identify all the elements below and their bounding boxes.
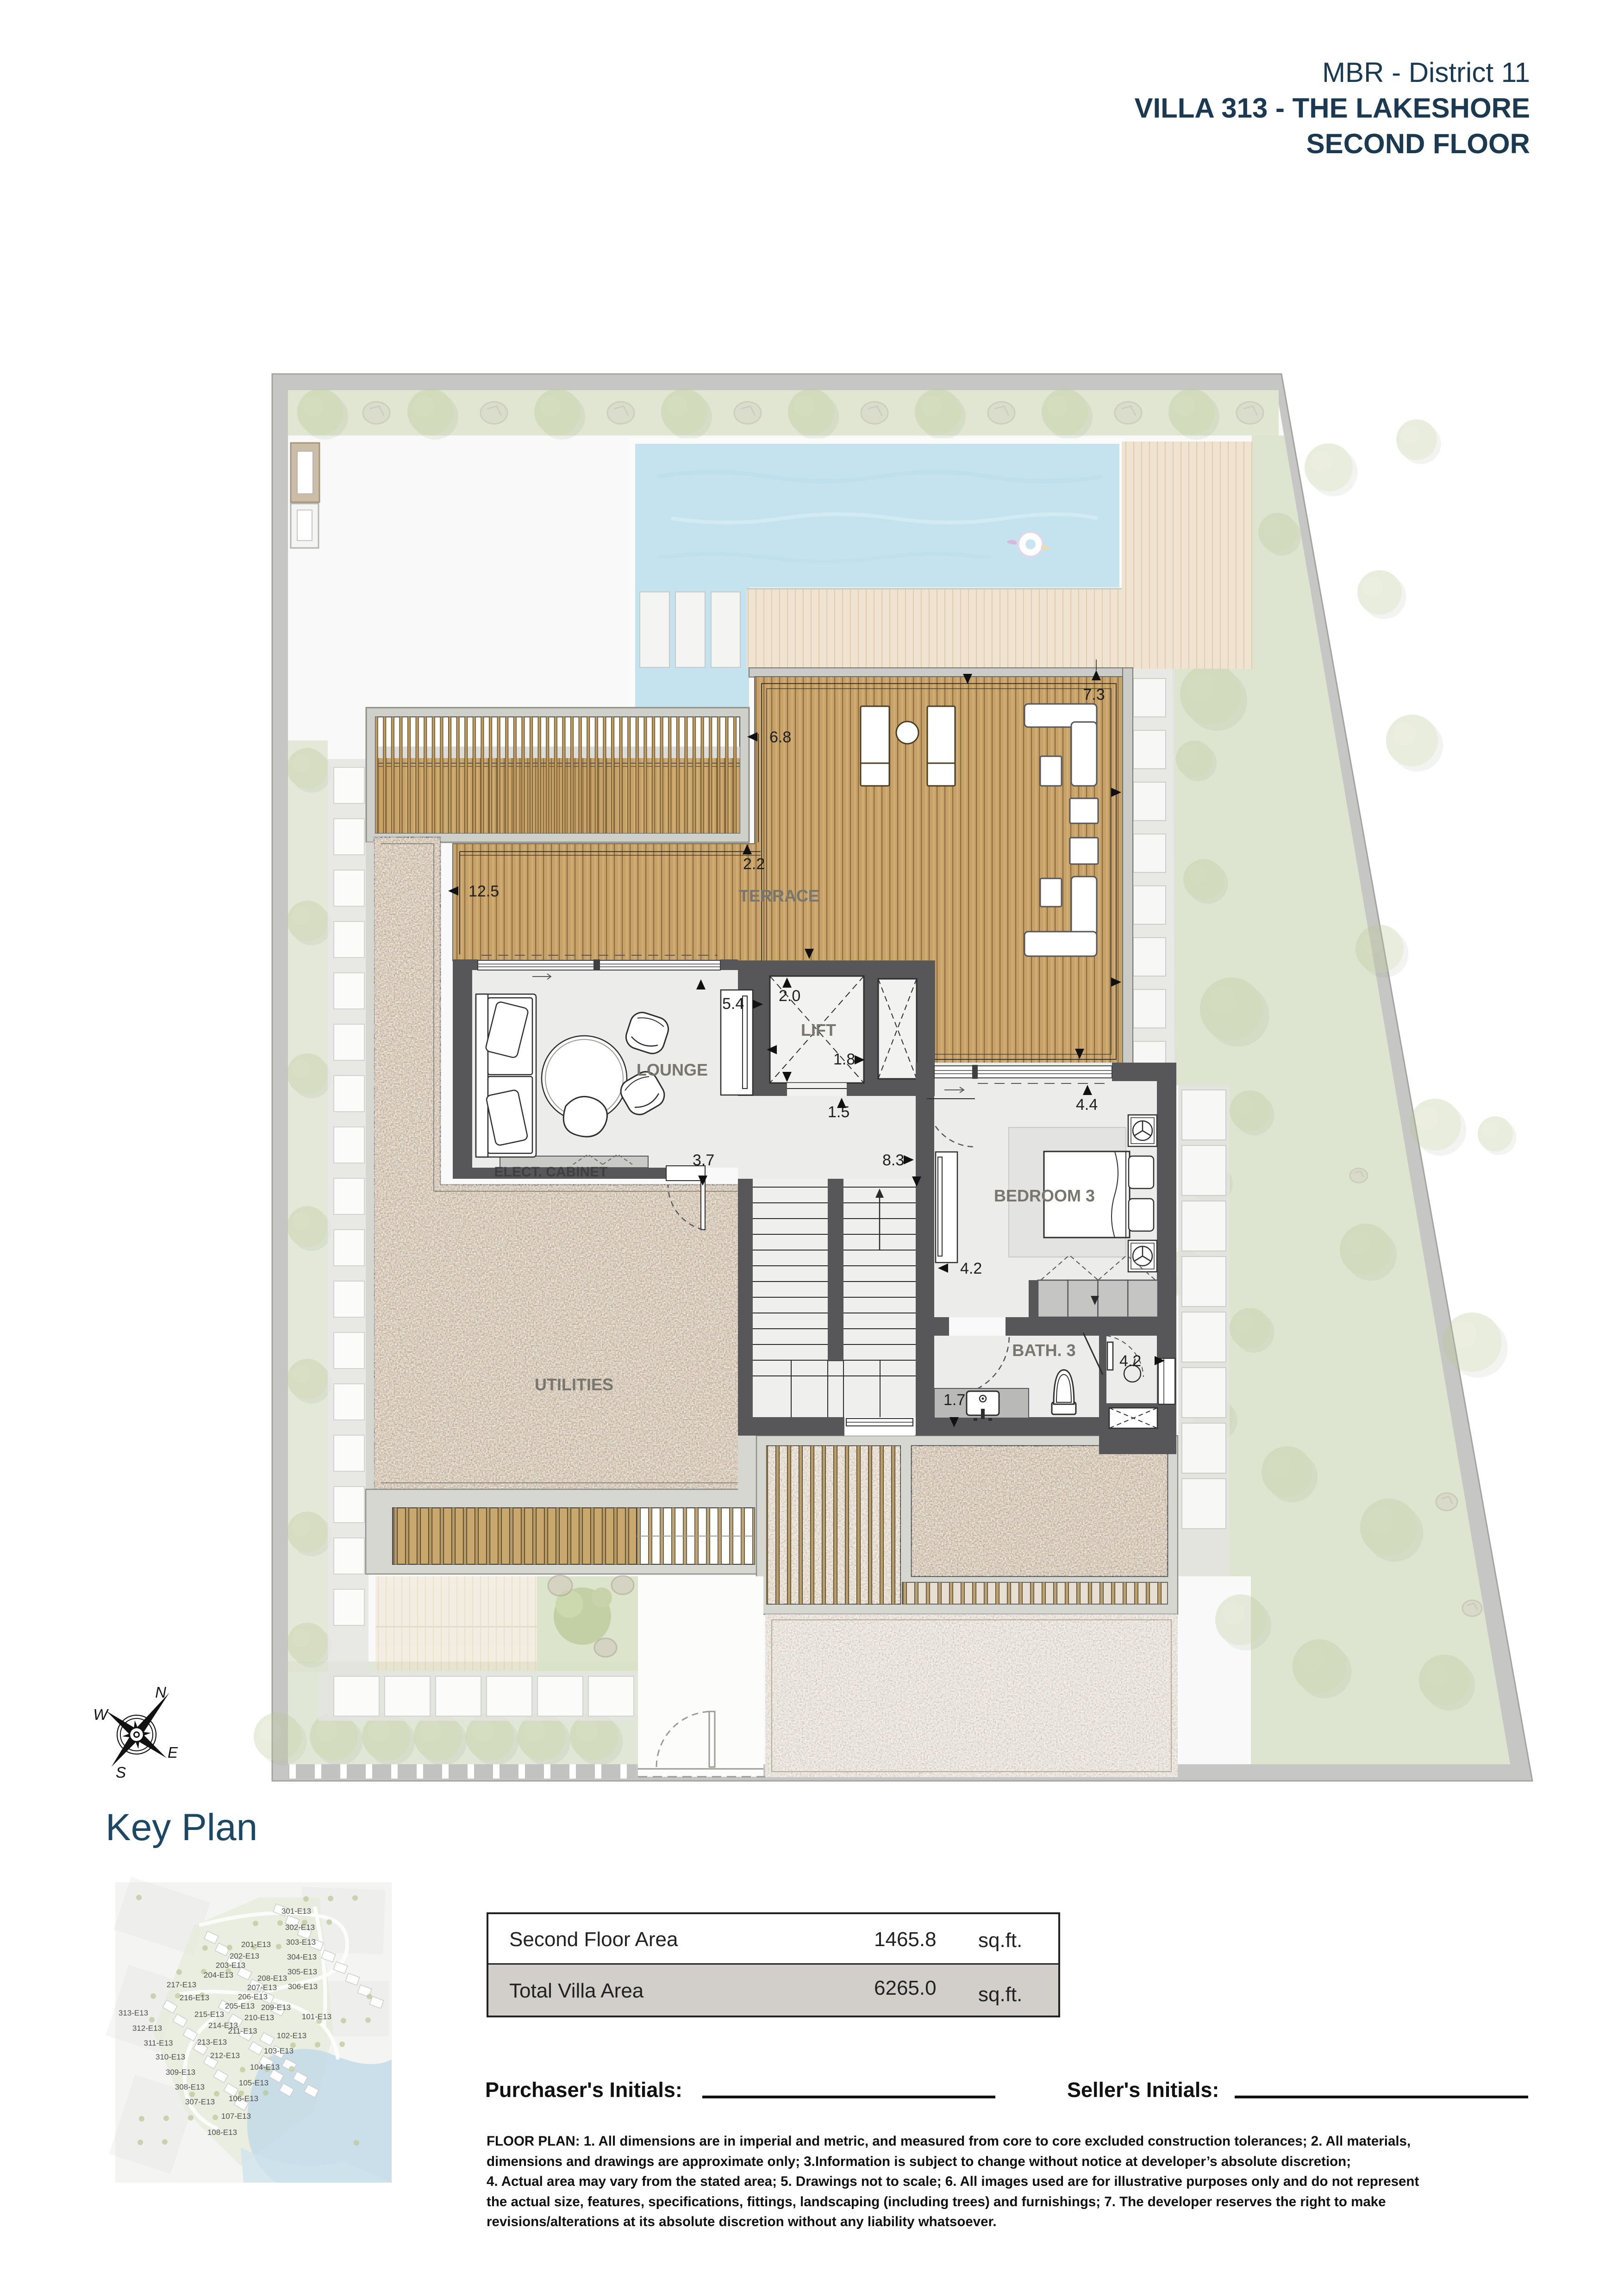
svg-text:UTILITIES: UTILITIES	[535, 1375, 613, 1394]
svg-text:2.2: 2.2	[743, 855, 765, 873]
svg-text:107-E13: 107-E13	[221, 2112, 251, 2121]
svg-text:306-E13: 306-E13	[288, 1982, 318, 1991]
svg-text:1.8: 1.8	[833, 1051, 855, 1068]
svg-text:312-E13: 312-E13	[132, 2024, 162, 2033]
svg-text:204-E13: 204-E13	[204, 1971, 233, 1979]
svg-text:4.2: 4.2	[960, 1260, 982, 1277]
svg-text:211-E13: 211-E13	[228, 2027, 257, 2035]
svg-text:209-E13: 209-E13	[261, 2003, 291, 2012]
svg-text:S: S	[116, 1764, 126, 1781]
svg-text:212-E13: 212-E13	[210, 2051, 240, 2060]
svg-text:210-E13: 210-E13	[244, 2013, 274, 2022]
svg-text:304-E13: 304-E13	[287, 1953, 317, 1961]
svg-text:8.3: 8.3	[882, 1151, 904, 1169]
svg-text:301-E13: 301-E13	[281, 1907, 311, 1916]
svg-text:LIFT: LIFT	[801, 1020, 836, 1039]
svg-text:310-E13: 310-E13	[156, 2053, 185, 2061]
svg-text:LOUNGE: LOUNGE	[637, 1060, 708, 1079]
svg-text:106-E13: 106-E13	[229, 2094, 258, 2103]
svg-text:5.4: 5.4	[722, 995, 744, 1013]
svg-text:303-E13: 303-E13	[286, 1938, 316, 1947]
svg-text:103-E13: 103-E13	[264, 2047, 294, 2055]
svg-text:105-E13: 105-E13	[239, 2078, 269, 2087]
svg-text:102-E13: 102-E13	[277, 2031, 306, 2040]
svg-text:217-E13: 217-E13	[167, 1980, 196, 1989]
svg-text:216-E13: 216-E13	[180, 1993, 209, 2002]
svg-text:305-E13: 305-E13	[287, 1967, 317, 1976]
svg-text:BATH. 3: BATH. 3	[1012, 1341, 1075, 1360]
svg-text:215-E13: 215-E13	[194, 2010, 224, 2019]
svg-text:201-E13: 201-E13	[241, 1940, 271, 1949]
svg-text:213-E13: 213-E13	[197, 2038, 227, 2047]
svg-text:2.0: 2.0	[779, 987, 800, 1005]
svg-text:3.7: 3.7	[693, 1151, 714, 1169]
svg-text:308-E13: 308-E13	[175, 2083, 205, 2091]
svg-text:202-E13: 202-E13	[230, 1952, 259, 1960]
svg-text:W: W	[93, 1706, 109, 1723]
svg-text:104-E13: 104-E13	[250, 2063, 280, 2072]
svg-text:207-E13: 207-E13	[247, 1983, 277, 1992]
svg-text:307-E13: 307-E13	[185, 2097, 215, 2106]
svg-text:6.8: 6.8	[769, 728, 791, 746]
svg-text:4.4: 4.4	[1076, 1096, 1098, 1114]
svg-text:12.5: 12.5	[468, 883, 499, 900]
svg-text:4.2: 4.2	[1119, 1352, 1141, 1370]
svg-text:108-E13: 108-E13	[207, 2128, 237, 2137]
svg-text:206-E13: 206-E13	[238, 1992, 268, 2001]
svg-text:311-E13: 311-E13	[144, 2039, 173, 2047]
svg-text:313-E13: 313-E13	[119, 2009, 148, 2017]
svg-text:7.3: 7.3	[1083, 686, 1105, 703]
svg-text:BEDROOM 3: BEDROOM 3	[994, 1186, 1095, 1205]
svg-text:1.7: 1.7	[943, 1391, 965, 1409]
svg-text:208-E13: 208-E13	[257, 1974, 287, 1983]
svg-text:205-E13: 205-E13	[225, 2002, 255, 2010]
svg-text:309-E13: 309-E13	[166, 2068, 195, 2077]
svg-text:302-E13: 302-E13	[285, 1923, 315, 1932]
svg-text:E: E	[168, 1744, 178, 1761]
svg-text:ELECT. CABINET: ELECT. CABINET	[494, 1164, 607, 1180]
svg-text:TERRACE: TERRACE	[739, 886, 819, 905]
svg-text:N: N	[155, 1684, 166, 1701]
svg-text:101-E13: 101-E13	[302, 2012, 331, 2021]
svg-text:203-E13: 203-E13	[216, 1961, 245, 1970]
